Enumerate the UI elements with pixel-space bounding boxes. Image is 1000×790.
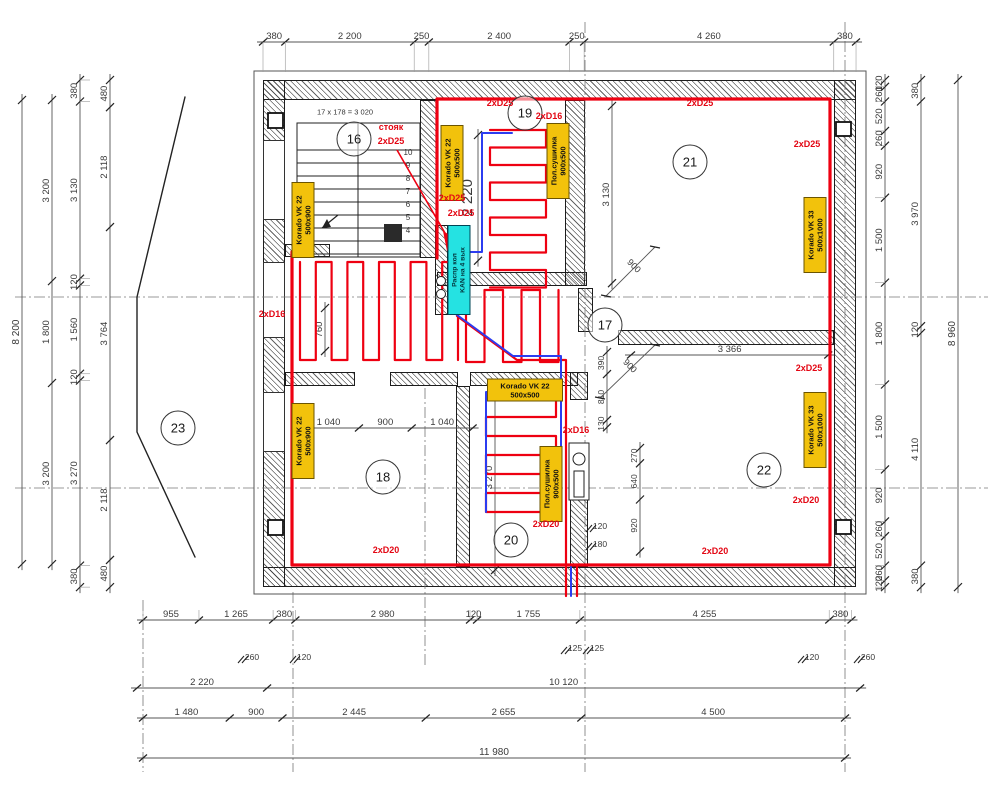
radiator-label: Пол.сушилка900x500 bbox=[547, 123, 570, 199]
dim-label: 4 500 bbox=[701, 707, 725, 718]
dim-label: 250 bbox=[569, 31, 585, 42]
room-bubble-21: 21 bbox=[673, 145, 708, 180]
dim-label: 380 bbox=[832, 609, 848, 620]
dim-chain-right-3: 8 960 bbox=[947, 74, 962, 593]
radiator-size: 900x500 bbox=[558, 146, 567, 175]
dim-chain-top: 3802 2002502 4002504 260380 bbox=[257, 31, 862, 72]
dim-chain-bottom-1: 9551 2653802 9801201 7554 255380 bbox=[137, 609, 857, 624]
dim-label: 1 800 bbox=[874, 322, 885, 346]
dim-label: 2 445 bbox=[342, 707, 366, 718]
dim-label: 120 bbox=[910, 322, 921, 338]
dim-label: 900 bbox=[377, 417, 393, 428]
stair-step-number: 10 bbox=[404, 148, 413, 157]
dim-line-diagonal bbox=[606, 247, 655, 296]
pipe-size-label: стояк bbox=[379, 122, 403, 132]
dim-line-diagonal bbox=[600, 345, 655, 398]
dim-label: 8 960 bbox=[947, 321, 958, 346]
dim-chain-int-3130: 3 130 bbox=[601, 100, 616, 289]
pipe-size-label: 2xD16 bbox=[536, 111, 563, 121]
dim-label: 4 255 bbox=[693, 609, 717, 620]
dim-label: 260 bbox=[874, 130, 885, 146]
room-bubble-20: 20 bbox=[494, 523, 529, 558]
radiator-label: Korado VK 22500x500 bbox=[487, 379, 563, 402]
pipe-size-label: 2xD25 bbox=[448, 208, 475, 218]
dim-label: 120 bbox=[69, 274, 80, 290]
floor-heating-coil-hall bbox=[300, 262, 458, 360]
stair-step-number: 6 bbox=[406, 200, 411, 209]
stair-step-number: 4 bbox=[406, 226, 411, 235]
dim-label: 2 118 bbox=[99, 488, 110, 511]
radiator-model: Korado VK 22 bbox=[294, 416, 303, 465]
pipe-size-label: 2xD16 bbox=[563, 425, 590, 435]
dim-label: 11 980 bbox=[479, 747, 509, 758]
pipe-size-label: 2xD25 bbox=[794, 139, 821, 149]
dim-label: 2 220 bbox=[190, 677, 214, 688]
dim-label: 2 655 bbox=[492, 707, 516, 718]
dim-label: 270 bbox=[629, 448, 639, 462]
stair-walkline-arrow bbox=[322, 219, 331, 228]
dim-label: 4 110 bbox=[910, 438, 921, 461]
pipe-size-label: 2xD25 bbox=[487, 98, 514, 108]
radiator-label: Korado VK 33500x1000 bbox=[804, 197, 827, 273]
dim-chain-bottom-2: 2 22010 120 bbox=[131, 677, 866, 692]
dim-label: 520 bbox=[874, 108, 885, 124]
radiator-size: 500x500 bbox=[510, 390, 539, 399]
stair-step-number: 5 bbox=[406, 213, 411, 222]
dim-label: 520 bbox=[874, 543, 885, 559]
dim-label: 120 bbox=[466, 609, 482, 620]
dim-chain-int-room18: 1 0409001 040 bbox=[292, 417, 479, 432]
dim-label: 1 800 bbox=[41, 320, 52, 344]
dim-label: 3 130 bbox=[69, 178, 80, 202]
dim-label: 920 bbox=[874, 488, 885, 504]
dim-label: 3 270 bbox=[69, 461, 80, 485]
column-symbol bbox=[836, 122, 851, 136]
dim-label: 1 480 bbox=[174, 707, 198, 718]
dim-label: 10 120 bbox=[549, 677, 578, 688]
floor-plan-canvas: 17 x 178 = 3 020 3802 2002502 4002504 26… bbox=[0, 0, 1000, 790]
dim-label: 3 130 bbox=[601, 183, 612, 207]
dim-label: 2 200 bbox=[338, 31, 362, 42]
dim-label: 4 260 bbox=[697, 31, 721, 42]
dim-label-diagonal: 900 bbox=[625, 257, 643, 275]
dim-chain-int-mid-b: 270640920 bbox=[629, 442, 644, 558]
manifold-label: Распр колKAN на 4 вых bbox=[448, 225, 471, 315]
stair-formula: 17 x 178 = 3 020 bbox=[317, 108, 373, 117]
dim-tick bbox=[650, 246, 660, 248]
dim-label: 1 755 bbox=[517, 609, 541, 620]
radiator-size: 500x500 bbox=[452, 148, 461, 177]
pipe-size-label: 2xD16 bbox=[259, 309, 286, 319]
dim-label: 900 bbox=[248, 707, 264, 718]
radiator-label: Пол.сушилка900x500 bbox=[540, 446, 563, 522]
radiator-model: Пол.сушилка bbox=[542, 460, 551, 509]
dim-chain-bottom-3: 1 4809002 4452 6554 500 bbox=[137, 707, 851, 722]
pipe-size-label: 2xD25 bbox=[796, 363, 823, 373]
pipe-size-label: 2xD20 bbox=[702, 546, 729, 556]
dim-label: 640 bbox=[629, 474, 639, 488]
dim-tick bbox=[650, 344, 660, 346]
stair-step-number: 8 bbox=[406, 174, 411, 183]
dim-chain-left-2: 3 2001 8003 200 bbox=[41, 94, 56, 570]
floor-heating-coil-room19 bbox=[490, 130, 546, 288]
dim-label: 2 980 bbox=[371, 609, 395, 620]
radiator-model: Korado VK 33 bbox=[806, 210, 815, 259]
dim-label: 1 500 bbox=[874, 228, 885, 252]
radiator-model: Korado VK 33 bbox=[806, 405, 815, 454]
dim-chain-right-1: 1202605202609201 5001 8001 5009202605202… bbox=[874, 74, 889, 593]
radiator-size: 900x500 bbox=[551, 469, 560, 498]
manifold-line2: KAN на 4 вых bbox=[459, 247, 467, 293]
dim-label: 2 118 bbox=[99, 156, 110, 179]
radiator-model: Korado VK 22 bbox=[500, 381, 549, 390]
column-symbol bbox=[268, 520, 283, 535]
shaft-pipe-symbol bbox=[437, 277, 446, 286]
dim-label: 260 bbox=[874, 86, 885, 102]
dim-label: 380 bbox=[69, 83, 80, 99]
dim-label: 130 bbox=[596, 416, 606, 430]
pipe-size-label: 2xD20 bbox=[793, 495, 820, 505]
dim-label: 1 500 bbox=[874, 415, 885, 439]
dim-label: 3 200 bbox=[41, 462, 52, 486]
dim-label: 250 bbox=[414, 31, 430, 42]
dim-label: 380 bbox=[910, 568, 921, 584]
radiator-label: Korado VK 22500x500 bbox=[441, 125, 464, 201]
room-bubble-16: 16 bbox=[337, 122, 372, 157]
dim-chain-right-2: 3803 9701204 110380 bbox=[910, 74, 925, 593]
radiator-size: 500x1000 bbox=[815, 218, 824, 251]
pipe-size-label: 2xD20 bbox=[533, 519, 560, 529]
dim-label: 380 bbox=[276, 609, 292, 620]
dim-label: 120 bbox=[69, 369, 80, 385]
dim-label: 380 bbox=[910, 83, 921, 99]
pipe-size-label: 2xD25 bbox=[439, 193, 466, 203]
column-symbol bbox=[268, 113, 283, 128]
dim-label-diagonal: 900 bbox=[621, 357, 639, 375]
dim-chain-bottom-4: 11 980 bbox=[137, 747, 851, 762]
radiator-label: Korado VK 33500x1000 bbox=[804, 392, 827, 468]
dim-label: 3 970 bbox=[910, 202, 921, 226]
radiator-size: 500x900 bbox=[303, 205, 312, 234]
dim-label: 955 bbox=[163, 609, 179, 620]
room-bubble-17: 17 bbox=[588, 308, 623, 343]
radiator-model: Пол.сушилка bbox=[549, 137, 558, 186]
dim-label: 260 bbox=[874, 521, 885, 537]
dim-label: 1 040 bbox=[430, 417, 454, 428]
radiator-model: Korado VK 22 bbox=[294, 195, 303, 244]
dim-label: 120 bbox=[874, 576, 885, 592]
radiator-model: Korado VK 22 bbox=[443, 138, 452, 187]
dim-label: 2 400 bbox=[487, 31, 511, 42]
dim-chain-left-3: 3803 1301201 5601203 270380 bbox=[69, 74, 90, 593]
dim-label: 480 bbox=[99, 86, 110, 102]
room-bubble-22: 22 bbox=[747, 453, 782, 488]
pipe-size-label: 2xD25 bbox=[378, 136, 405, 146]
dim-label: 380 bbox=[837, 31, 853, 42]
dim-label: 380 bbox=[69, 568, 80, 584]
dim-chain-left-1: 8 200 bbox=[11, 94, 26, 570]
dim-label: 1 560 bbox=[69, 318, 80, 342]
dim-label: 8 200 bbox=[11, 319, 22, 344]
dim-label: 920 bbox=[874, 164, 885, 180]
dim-label: 380 bbox=[266, 31, 282, 42]
radiator-size: 500x1000 bbox=[815, 413, 824, 446]
dim-chain-int-3366: 3 366 bbox=[625, 344, 834, 359]
stair-step-number: 7 bbox=[406, 187, 411, 196]
dim-label: 480 bbox=[99, 566, 110, 582]
dim-label: 920 bbox=[629, 518, 639, 532]
room-bubble-18: 18 bbox=[366, 460, 401, 495]
floor-heating-coil-hall-2 bbox=[466, 290, 559, 362]
dim-label: 1 265 bbox=[224, 609, 248, 620]
dim-label: 3 200 bbox=[41, 179, 52, 203]
dim-label: 3 366 bbox=[718, 344, 742, 355]
shaft-pipe-symbol bbox=[437, 290, 446, 299]
dim-chain-left-4: 4802 1183 7642 118480 bbox=[99, 74, 114, 593]
pipe-size-label: 2xD25 bbox=[687, 98, 714, 108]
radiator-label: Korado VK 22500x900 bbox=[292, 403, 315, 479]
chimney-symbol bbox=[384, 224, 402, 242]
dim-label: 1 040 bbox=[317, 417, 341, 428]
dim-label: 390 bbox=[596, 356, 606, 370]
radiator-label: Korado VK 22500x900 bbox=[292, 182, 315, 258]
column-symbol bbox=[836, 520, 851, 534]
pipe-size-label: 2xD20 bbox=[373, 545, 400, 555]
manifold-line1: Распр кол bbox=[451, 253, 459, 287]
radiator-size: 500x900 bbox=[303, 426, 312, 455]
dim-label: 3 764 bbox=[99, 322, 110, 346]
room-bubble-23: 23 bbox=[161, 411, 196, 446]
